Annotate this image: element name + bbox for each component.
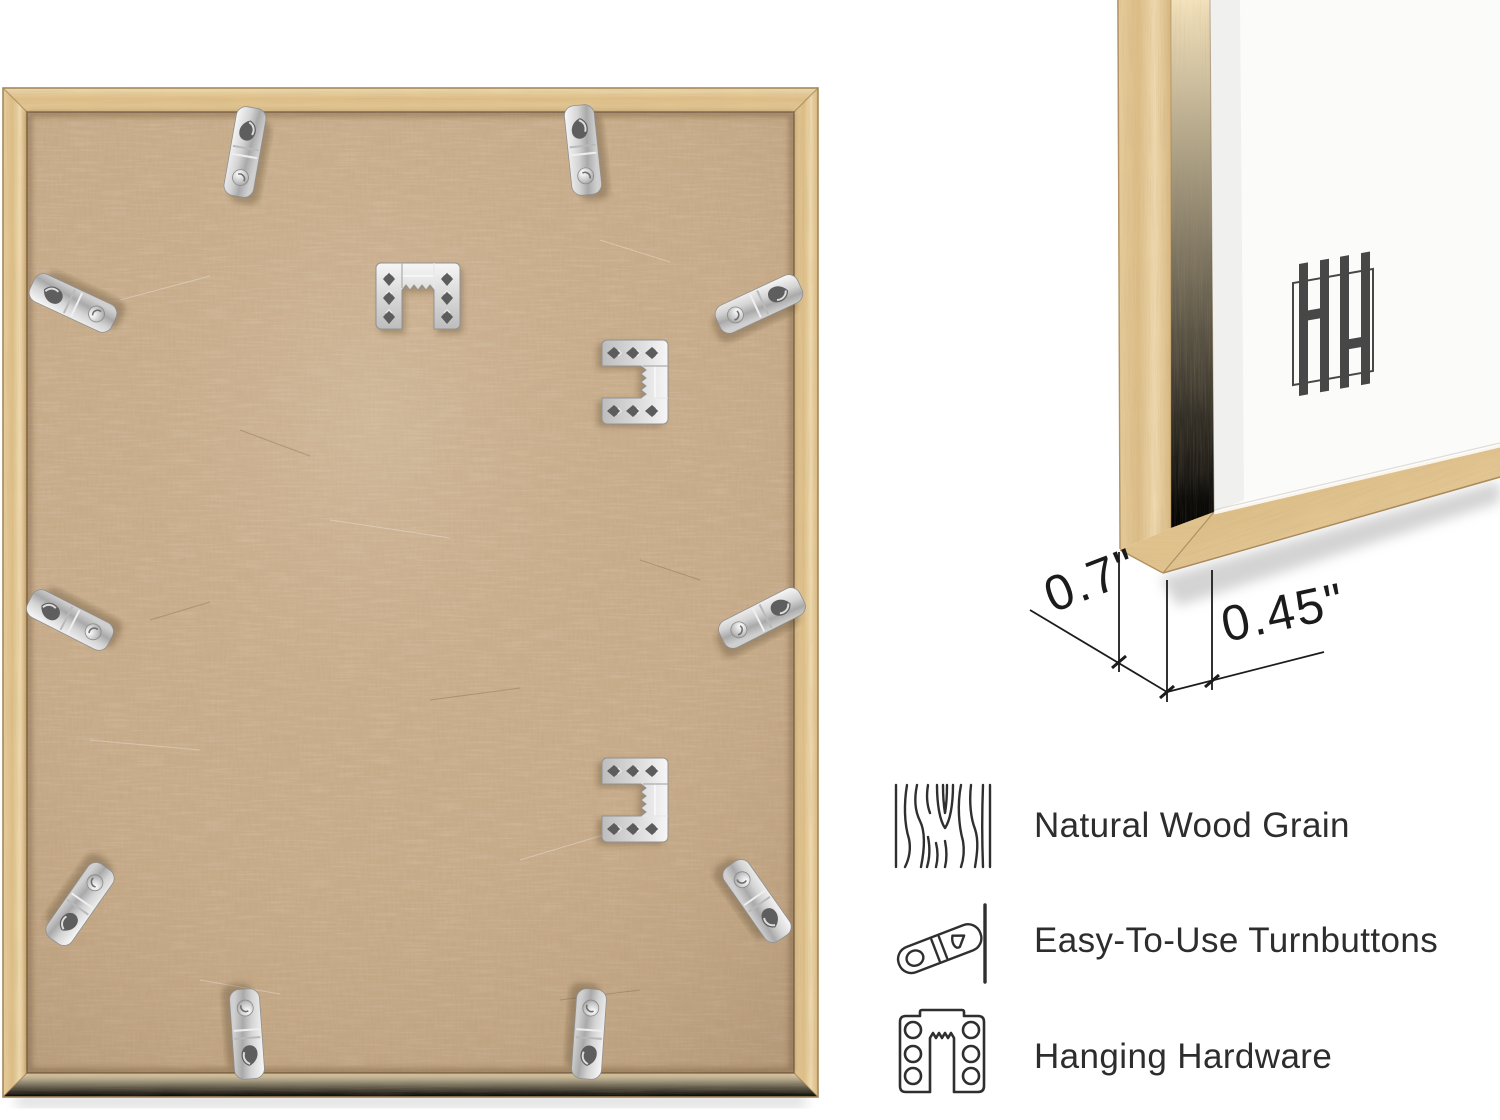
backboard — [27, 112, 794, 1073]
face-dimension-line — [1167, 652, 1324, 692]
feature-icons — [894, 785, 990, 1092]
wood-grain-icon — [896, 785, 990, 867]
feature-label-hanging-hardware: Hanging Hardware — [1034, 1037, 1332, 1077]
frame-corner-closeup — [1066, 0, 1500, 638]
mat-board — [1210, 0, 1500, 512]
hanging-hardware-icon — [900, 1010, 984, 1092]
turnbutton-icon — [894, 905, 985, 982]
product-infographic: 0.7" 0.45" Natural Wood Grain Easy-To-Us… — [0, 0, 1500, 1120]
feature-label-turnbuttons: Easy-To-Use Turnbuttons — [1034, 921, 1438, 961]
frame-back-photo — [3, 88, 818, 1107]
depth-dimension-line — [1030, 610, 1167, 692]
feature-label-wood-grain: Natural Wood Grain — [1034, 806, 1350, 846]
